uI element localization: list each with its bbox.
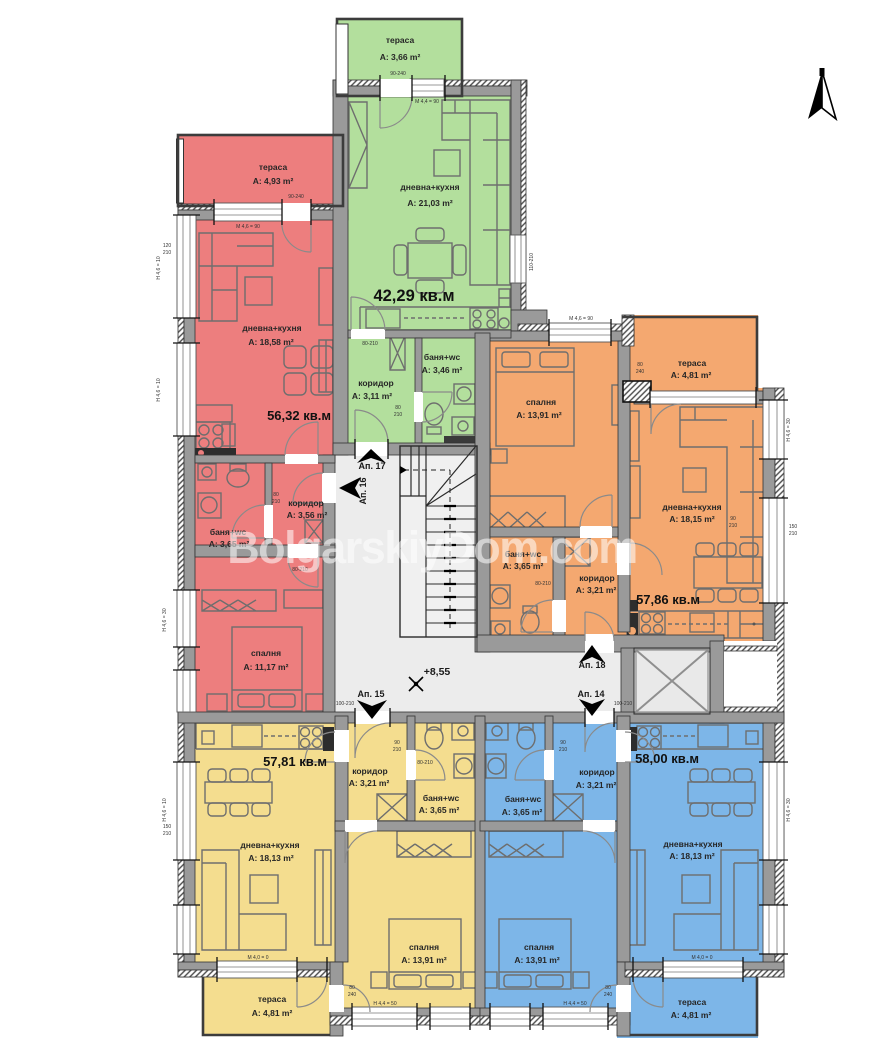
svg-text:100-210: 100-210 <box>336 701 355 707</box>
svg-text:A: 18,58 m²: A: 18,58 m² <box>248 337 294 347</box>
svg-text:Ап. 17: Ап. 17 <box>359 461 386 471</box>
svg-text:A: 3,21 m²: A: 3,21 m² <box>576 780 617 790</box>
svg-text:дневна+кухня: дневна+кухня <box>663 839 722 849</box>
svg-text:спалня: спалня <box>251 648 281 658</box>
svg-text:Н 4,6 = 10: Н 4,6 = 10 <box>156 256 162 279</box>
svg-text:М 4,0 = 0: М 4,0 = 0 <box>248 955 269 961</box>
svg-text:A: 13,91 m²: A: 13,91 m² <box>514 955 560 965</box>
svg-text:210: 210 <box>394 412 403 418</box>
svg-text:210: 210 <box>729 523 738 529</box>
svg-text:М 4,4 = 90: М 4,4 = 90 <box>415 99 439 105</box>
svg-text:коридор: коридор <box>579 767 615 777</box>
svg-text:42,29 кв.м: 42,29 кв.м <box>373 287 454 305</box>
svg-text:210: 210 <box>163 831 172 837</box>
svg-text:90: 90 <box>730 516 736 522</box>
svg-text:тераса: тераса <box>678 997 707 1007</box>
svg-text:спалня: спалня <box>526 397 556 407</box>
svg-text:A: 3,65 m²: A: 3,65 m² <box>502 807 543 817</box>
svg-text:210: 210 <box>559 747 568 753</box>
svg-text:Н 4,6 = 30: Н 4,6 = 30 <box>786 798 792 821</box>
svg-text:80-210: 80-210 <box>417 760 433 766</box>
svg-text:коридор: коридор <box>358 378 394 388</box>
svg-text:58,00 кв.м: 58,00 кв.м <box>635 751 699 766</box>
svg-text:80: 80 <box>349 985 355 991</box>
svg-text:90-240: 90-240 <box>390 71 406 77</box>
svg-text:коридор: коридор <box>288 498 324 508</box>
svg-text:спалня: спалня <box>524 942 554 952</box>
svg-text:A: 11,17 m²: A: 11,17 m² <box>244 662 289 672</box>
svg-text:100-210: 100-210 <box>614 701 633 707</box>
svg-text:A: 4,81 m²: A: 4,81 m² <box>671 1010 712 1020</box>
svg-text:Ап. 15: Ап. 15 <box>358 689 385 699</box>
svg-text:80-210: 80-210 <box>362 341 378 347</box>
svg-text:тераса: тераса <box>259 162 288 172</box>
svg-text:М 4,0 = 0: М 4,0 = 0 <box>692 955 713 961</box>
svg-text:80: 80 <box>395 405 401 411</box>
svg-text:A: 4,81 m²: A: 4,81 m² <box>671 370 712 380</box>
svg-text:тераса: тераса <box>386 35 415 45</box>
svg-text:коридор: коридор <box>352 766 388 776</box>
svg-text:дневна+кухня: дневна+кухня <box>242 323 301 333</box>
svg-text:Н 4,6 = 10: Н 4,6 = 10 <box>156 378 162 401</box>
svg-text:240: 240 <box>636 369 645 375</box>
svg-text:М 4,6 = 90: М 4,6 = 90 <box>569 316 593 322</box>
svg-text:Н 4,4 = 50: Н 4,4 = 50 <box>373 1001 396 1007</box>
svg-text:150: 150 <box>789 524 798 530</box>
svg-text:Н 4,6 = 30: Н 4,6 = 30 <box>162 608 168 631</box>
svg-text:дневна+кухня: дневна+кухня <box>400 182 459 192</box>
svg-text:A: 3,46 m²: A: 3,46 m² <box>422 365 463 375</box>
svg-text:дневна+кухня: дневна+кухня <box>240 840 299 850</box>
svg-text:A: 3,21 m²: A: 3,21 m² <box>576 585 617 595</box>
svg-text:A: 13,91 m²: A: 13,91 m² <box>516 410 562 420</box>
svg-text:240: 240 <box>604 992 613 998</box>
svg-text:210: 210 <box>272 499 281 505</box>
svg-text:57,86 кв.м: 57,86 кв.м <box>636 592 700 607</box>
svg-text:A: 18,15 m²: A: 18,15 m² <box>669 514 715 524</box>
svg-text:A: 3,11 m²: A: 3,11 m² <box>352 391 392 401</box>
svg-text:Ап. 14: Ап. 14 <box>578 689 605 699</box>
svg-text:57,81 кв.м: 57,81 кв.м <box>263 754 327 769</box>
svg-text:A: 18,13 m²: A: 18,13 m² <box>248 853 294 863</box>
svg-text:коридор: коридор <box>579 573 615 583</box>
svg-text:210: 210 <box>163 250 172 256</box>
svg-text:240: 240 <box>348 992 357 998</box>
svg-text:56,32 кв.м: 56,32 кв.м <box>267 408 331 423</box>
svg-text:210: 210 <box>393 747 402 753</box>
svg-text:баня+wc: баня+wc <box>423 793 460 803</box>
svg-text:80: 80 <box>605 985 611 991</box>
svg-text:A: 3,56 m²: A: 3,56 m² <box>287 510 328 520</box>
svg-text:тераса: тераса <box>258 994 287 1004</box>
svg-text:Ап. 18: Ап. 18 <box>579 660 606 670</box>
svg-text:A: 18,13 m²: A: 18,13 m² <box>669 851 715 861</box>
svg-text:80: 80 <box>637 362 643 368</box>
svg-text:М 4,6 = 90: М 4,6 = 90 <box>236 224 260 230</box>
svg-text:Н 4,6 = 10: Н 4,6 = 10 <box>162 798 168 821</box>
svg-text:Н 4,4 = 50: Н 4,4 = 50 <box>563 1001 586 1007</box>
svg-text:90: 90 <box>560 740 566 746</box>
svg-text:90-240: 90-240 <box>288 194 304 200</box>
svg-text:110-210: 110-210 <box>529 253 535 271</box>
svg-text:дневна+кухня: дневна+кухня <box>662 502 721 512</box>
svg-text:120: 120 <box>163 243 172 249</box>
svg-text:A: 13,91 m²: A: 13,91 m² <box>401 955 447 965</box>
svg-text:A: 4,81 m²: A: 4,81 m² <box>252 1008 293 1018</box>
svg-text:Ап. 16: Ап. 16 <box>358 478 368 505</box>
svg-text:тераса: тераса <box>678 358 707 368</box>
svg-text:спалня: спалня <box>409 942 439 952</box>
svg-text:+8,55: +8,55 <box>424 666 451 678</box>
svg-text:A: 3,66 m²: A: 3,66 m² <box>380 52 421 62</box>
svg-text:90: 90 <box>394 740 400 746</box>
svg-text:A: 3,65 m²: A: 3,65 m² <box>419 805 460 815</box>
svg-text:баня+wc: баня+wc <box>505 794 542 804</box>
svg-text:баня+wc: баня+wc <box>424 352 461 362</box>
svg-text:210: 210 <box>789 531 798 537</box>
svg-text:A: 4,93 m²: A: 4,93 m² <box>253 176 294 186</box>
svg-text:A: 21,03 m²: A: 21,03 m² <box>407 198 453 208</box>
svg-text:80-210: 80-210 <box>535 581 551 587</box>
svg-text:BolgarskiyDom.com: BolgarskiyDom.com <box>227 522 637 573</box>
svg-text:150: 150 <box>163 824 172 830</box>
svg-text:80: 80 <box>273 492 279 498</box>
svg-text:A: 3,21 m²: A: 3,21 m² <box>349 778 390 788</box>
svg-text:Н 4,6 = 30: Н 4,6 = 30 <box>786 418 792 441</box>
